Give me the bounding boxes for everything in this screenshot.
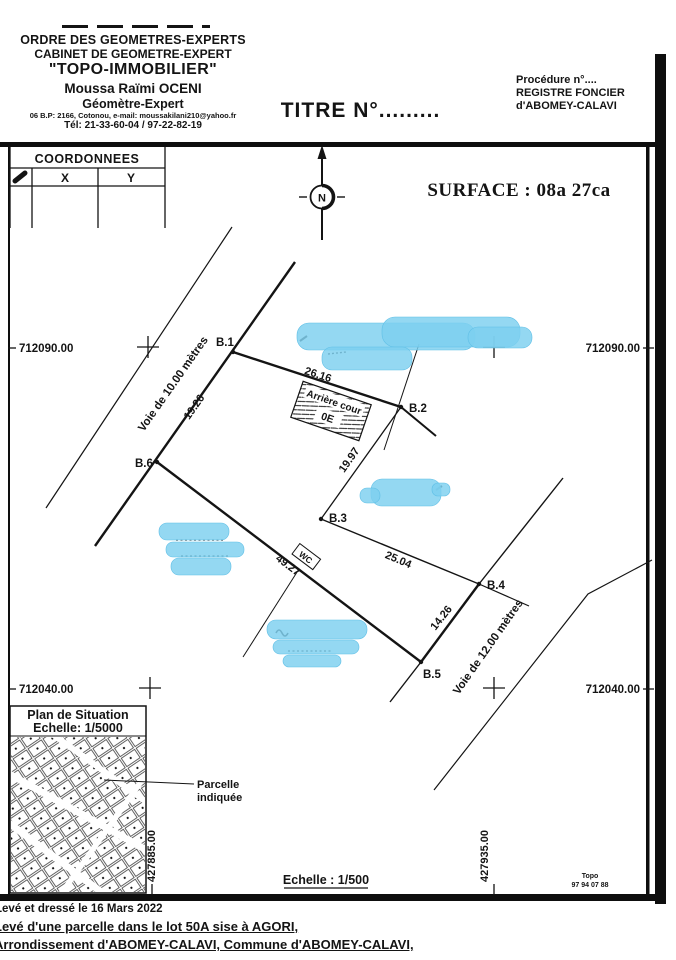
- road-label-east: Voie de 12.00 mètres: [451, 598, 526, 697]
- header-dashed-rule: [62, 25, 210, 28]
- topo-stamp: Topo 97 94 07 88: [572, 873, 609, 889]
- redaction-highlights: [159, 317, 532, 667]
- titre-label: TITRE N°.........: [258, 99, 463, 123]
- grid-label-xleft: 427885.00: [146, 830, 158, 882]
- stamp-line1: Topo: [582, 873, 599, 880]
- point-label-b2: B.2: [409, 403, 427, 415]
- redaction-owner-left: [159, 523, 244, 575]
- back-yard-box: Arrière cour 0E: [291, 381, 371, 440]
- grid-label-ybottom-left: 712040.00: [19, 684, 73, 696]
- boundary-marker-icon: [15, 173, 25, 181]
- cabinet-name: "TOPO-IMMOBILIER": [8, 61, 258, 79]
- org-line1: ORDRE DES GEOMETRES-EXPERTS: [8, 33, 258, 47]
- situation-title: Plan de Situation: [27, 708, 128, 722]
- procedure-label: Procédure n°....: [516, 74, 666, 87]
- scale-label: Echelle : 1/500: [283, 873, 369, 887]
- point-label-b1: B.1: [216, 337, 235, 349]
- registry-line1: REGISTRE FONCIER: [516, 87, 666, 100]
- surveyor-name: Moussa Raïmi OCENI: [8, 81, 258, 96]
- situation-parcels: [0, 718, 152, 900]
- redaction-owner-top: [297, 317, 532, 370]
- point-label-b4: B.4: [487, 580, 506, 592]
- footer-line3: Arrondissement d'ABOMEY-CALAVI, Commune …: [0, 937, 414, 952]
- plan-drawing: COORDONNEES X Y N SURFACE : 08a 27ca 712…: [0, 0, 676, 960]
- north-arrow: N: [299, 145, 345, 240]
- situation-map: Plan de Situation Echelle: 1/5000: [0, 706, 152, 900]
- phone-line: Tél: 21-33-60-04 / 97-22-82-19: [8, 120, 258, 131]
- column-y: Y: [127, 171, 135, 185]
- org-line2: CABINET DE GEOMETRE-EXPERT: [8, 47, 258, 61]
- redaction-owner-middle: [360, 479, 450, 506]
- survey-document-page: COORDONNEES X Y N SURFACE : 08a 27ca 712…: [0, 0, 676, 960]
- grid-label-xright: 427935.00: [479, 830, 491, 882]
- grid-label-ybottom-right: 712040.00: [586, 684, 640, 696]
- grid-label-ytop-right: 712090.00: [586, 343, 640, 355]
- dim-b6b1: 19.26: [182, 393, 208, 422]
- surface-label: SURFACE : 08a 27ca: [427, 180, 610, 201]
- surveyor-title: Géomètre-Expert: [8, 97, 258, 111]
- north-arrowhead: [318, 145, 327, 159]
- callout-line1: Parcelle: [197, 779, 239, 791]
- footer-line2: Levé d'une parcelle dans le lot 50A sise…: [0, 919, 298, 934]
- north-label: N: [318, 193, 326, 205]
- registry-block: Procédure n°.... REGISTRE FONCIER d'ABOM…: [516, 74, 666, 113]
- stamp-line2: 97 94 07 88: [572, 882, 609, 889]
- column-x: X: [61, 171, 69, 185]
- point-label-b5: B.5: [423, 669, 442, 681]
- footer-line1: Levé et dressé le 16 Mars 2022: [0, 903, 163, 915]
- grid-label-ytop-left: 712090.00: [19, 343, 73, 355]
- coordinates-table-title: COORDONNEES: [35, 152, 140, 166]
- situation-scale: Echelle: 1/5000: [33, 721, 123, 735]
- contact-line: 06 B.P: 2166, Cotonou, e-mail: moussakil…: [8, 111, 258, 120]
- parcel-boundaries: [157, 344, 529, 662]
- redaction-owner-bottom: [267, 620, 367, 667]
- callout-line2: indiquée: [197, 792, 242, 804]
- dim-b2b3: 19.97: [337, 446, 363, 475]
- point-label-b3: B.3: [329, 513, 347, 525]
- dim-b4b5: 14.26: [428, 604, 454, 633]
- registry-line2: d'ABOMEY-CALAVI: [516, 100, 666, 113]
- dim-b3b4: 25.04: [383, 549, 414, 571]
- point-label-b6: B.6: [135, 458, 153, 470]
